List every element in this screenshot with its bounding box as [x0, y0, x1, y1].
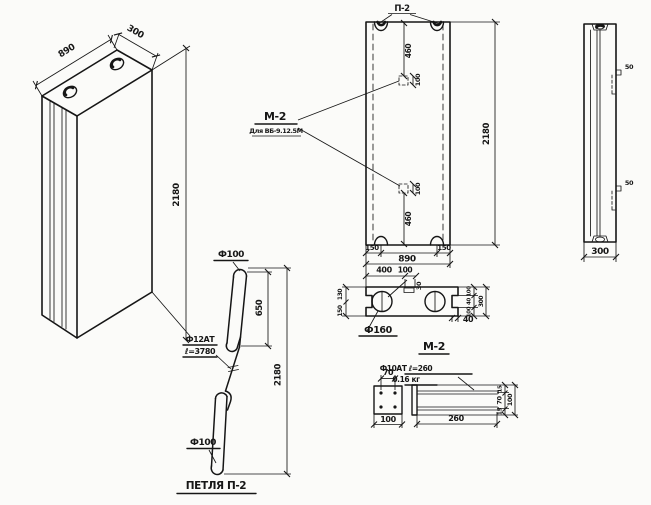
section-dim-left-2: 150	[337, 305, 344, 317]
section-dim-left-1: 130	[337, 289, 344, 301]
dim-400: 400	[376, 266, 392, 275]
dim-890: 890	[398, 255, 416, 265]
dim-100-upper-plate: 100	[414, 73, 422, 86]
dim-100-hole: 100	[398, 266, 413, 275]
side-loop-top	[596, 24, 605, 29]
m2-detail: М-2 70 100 Ф10АТ ℓ=260 0.16 кг 260	[374, 340, 518, 428]
loop-detail-title: ПЕТЛЯ П-2	[186, 480, 247, 492]
embedded-plate-upper	[399, 76, 408, 85]
front-view: П-2 460 100 100 460 М-2 Для ВБ-9.12.5М 2…	[249, 4, 500, 290]
m2-vdim-100: 100	[506, 393, 514, 406]
m2-rod-label: Ф10АТ ℓ=260	[380, 364, 433, 373]
loop-top-dia-label: Ф100	[218, 250, 244, 260]
technical-drawing-sheet: 890 300 2180 П-2	[0, 0, 651, 505]
m2-callout-note: Для ВБ-9.12.5М	[249, 127, 303, 135]
side-loop-bottom	[596, 237, 605, 242]
side-bracket-lower-dim: 50	[625, 179, 634, 187]
duct-dia-label: Ф160	[364, 325, 392, 336]
loop-bar-label: Ф12АТ	[186, 335, 216, 344]
dim-150-left: 150	[365, 244, 379, 252]
m2-weight: 0.16 кг	[392, 375, 420, 384]
dim-30: 30	[415, 281, 423, 290]
loop-detail: Ф100 650 Ф12АТ ℓ=3780 2180 Ф100 ПЕТЛЯ П-…	[177, 250, 291, 494]
side-view: 50 50 300	[584, 24, 634, 262]
loop-dim-2180: 2180	[274, 363, 284, 386]
m2-vdim-15b: 15	[498, 408, 504, 415]
lifting-loop-iso-right	[108, 56, 125, 72]
section-embedded-plate	[404, 288, 414, 293]
side-dim-300: 300	[591, 247, 609, 257]
vent-duct-right	[425, 292, 445, 312]
embedded-plate-lower	[399, 184, 408, 193]
loop-dim-650: 650	[255, 299, 265, 316]
vent-duct-left	[372, 292, 392, 312]
section-view: Ф160 40 130 150 100 40 100 300	[337, 280, 490, 336]
panel-grooves	[50, 101, 66, 330]
front-loop-top-left	[375, 22, 388, 31]
iso-dim-890: 890	[57, 42, 77, 60]
loop-mark-label: П-2	[394, 4, 410, 14]
m2-dim-100: 100	[380, 415, 396, 424]
m2-callout-label: М-2	[264, 110, 286, 123]
panel-working-drawing: 890 300 2180 П-2	[0, 0, 651, 505]
iso-dim-2180: 2180	[172, 183, 182, 207]
m2-leaders	[298, 81, 400, 186]
dim-150-right: 150	[437, 244, 451, 252]
m2-vdim-15a: 15	[498, 385, 504, 392]
dim-100-lower-plate: 100	[414, 182, 422, 195]
m2-vdim-70: 70	[496, 396, 504, 405]
isometric-view: 890 300 2180	[33, 24, 190, 340]
iso-dim-300: 300	[125, 24, 145, 42]
section-dim-right-1: 100	[467, 286, 473, 297]
side-bracket-upper-dim: 50	[625, 63, 634, 71]
loop-bottom-dia-label: Ф100	[190, 438, 216, 448]
dim-460-top: 460	[404, 44, 413, 59]
m2-plate-plan	[374, 386, 402, 414]
section-dim-right-2: 40	[467, 298, 473, 305]
m2-detail-title: М-2	[423, 340, 445, 353]
loop-wire	[211, 269, 246, 474]
front-dim-2180: 2180	[482, 122, 492, 145]
m2-plate-side	[412, 385, 499, 415]
lifting-loop-iso-left	[61, 84, 78, 100]
loop-bar-length: ℓ=3780	[184, 347, 216, 356]
section-dim-right-3: 100	[467, 306, 473, 317]
section-dim-right-total: 300	[478, 296, 485, 308]
dim-460-bottom: 460	[404, 212, 413, 227]
